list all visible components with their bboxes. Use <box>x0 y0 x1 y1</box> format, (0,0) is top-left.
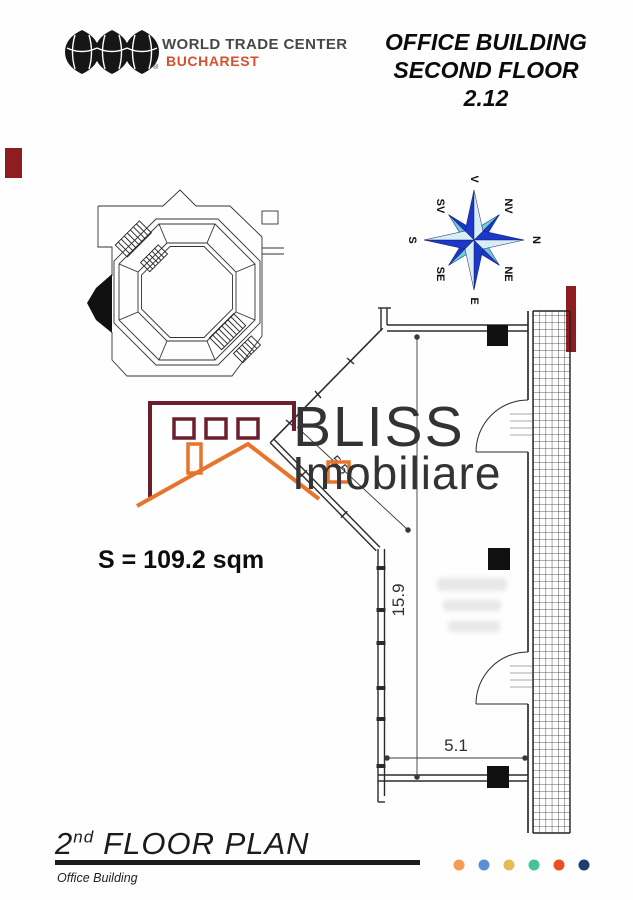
registered-mark: ® <box>153 64 158 71</box>
svg-text:SE: SE <box>434 267 446 282</box>
door-swing-lower <box>476 652 528 704</box>
door-swing-upper <box>476 400 528 452</box>
floor-plan-page: WORLD TRADE CENTER BUCHAREST ® OFFICE BU… <box>0 0 633 900</box>
wtc-globes-icon <box>62 24 162 82</box>
red-border-fragment-top-left <box>5 148 22 178</box>
brand-dot-5 <box>554 860 565 871</box>
door-gap-hatch <box>510 414 533 687</box>
svg-text:SV: SV <box>434 199 446 214</box>
brand-dots <box>450 855 600 875</box>
scan-artifact <box>437 578 507 632</box>
footer-title-number: 2 <box>55 826 73 861</box>
floor-plan-drawing: 15.9 5.1 5.5 <box>255 290 585 840</box>
title-line-unit: 2.12 <box>352 84 620 112</box>
title-line-floor: SECOND FLOOR <box>352 56 620 84</box>
structural-columns <box>487 325 510 788</box>
footer-rule <box>55 860 420 865</box>
svg-text:S: S <box>408 236 418 243</box>
brand-dot-4 <box>529 860 540 871</box>
compass-rose-icon: V NV N NE E SE S SV <box>408 176 542 308</box>
title-line-building: OFFICE BUILDING <box>352 28 620 56</box>
brand-dot-2 <box>479 860 490 871</box>
area-label: S = 109.2 sqm <box>98 546 264 575</box>
wtc-logo-city: BUCHAREST <box>166 53 259 69</box>
stair-core-bottom-right <box>210 314 261 363</box>
dim-vertical: 15.9 <box>389 583 408 616</box>
svg-text:NE: NE <box>502 266 514 281</box>
wtc-logo-text: WORLD TRADE CENTER <box>162 36 348 53</box>
brand-dot-3 <box>504 860 515 871</box>
svg-text:V: V <box>468 176 480 183</box>
footer-title: 2ndFLOOR PLAN <box>55 826 310 862</box>
svg-text:NV: NV <box>502 198 514 214</box>
hatched-facade-band <box>533 311 570 833</box>
footer-subtitle: Office Building <box>57 871 138 885</box>
unit-location-marker <box>87 274 112 333</box>
footer-title-ordinal: nd <box>73 828 94 847</box>
stair-core-top-left <box>115 221 167 272</box>
brand-dot-6 <box>579 860 590 871</box>
dim-horizontal: 5.1 <box>444 736 468 755</box>
document-title: OFFICE BUILDING SECOND FLOOR 2.12 <box>352 28 620 112</box>
watermark-brand-word: Imobiliare <box>292 446 501 500</box>
brand-dot-1 <box>454 860 465 871</box>
footer-title-text: FLOOR PLAN <box>103 826 309 861</box>
svg-text:N: N <box>530 236 542 244</box>
